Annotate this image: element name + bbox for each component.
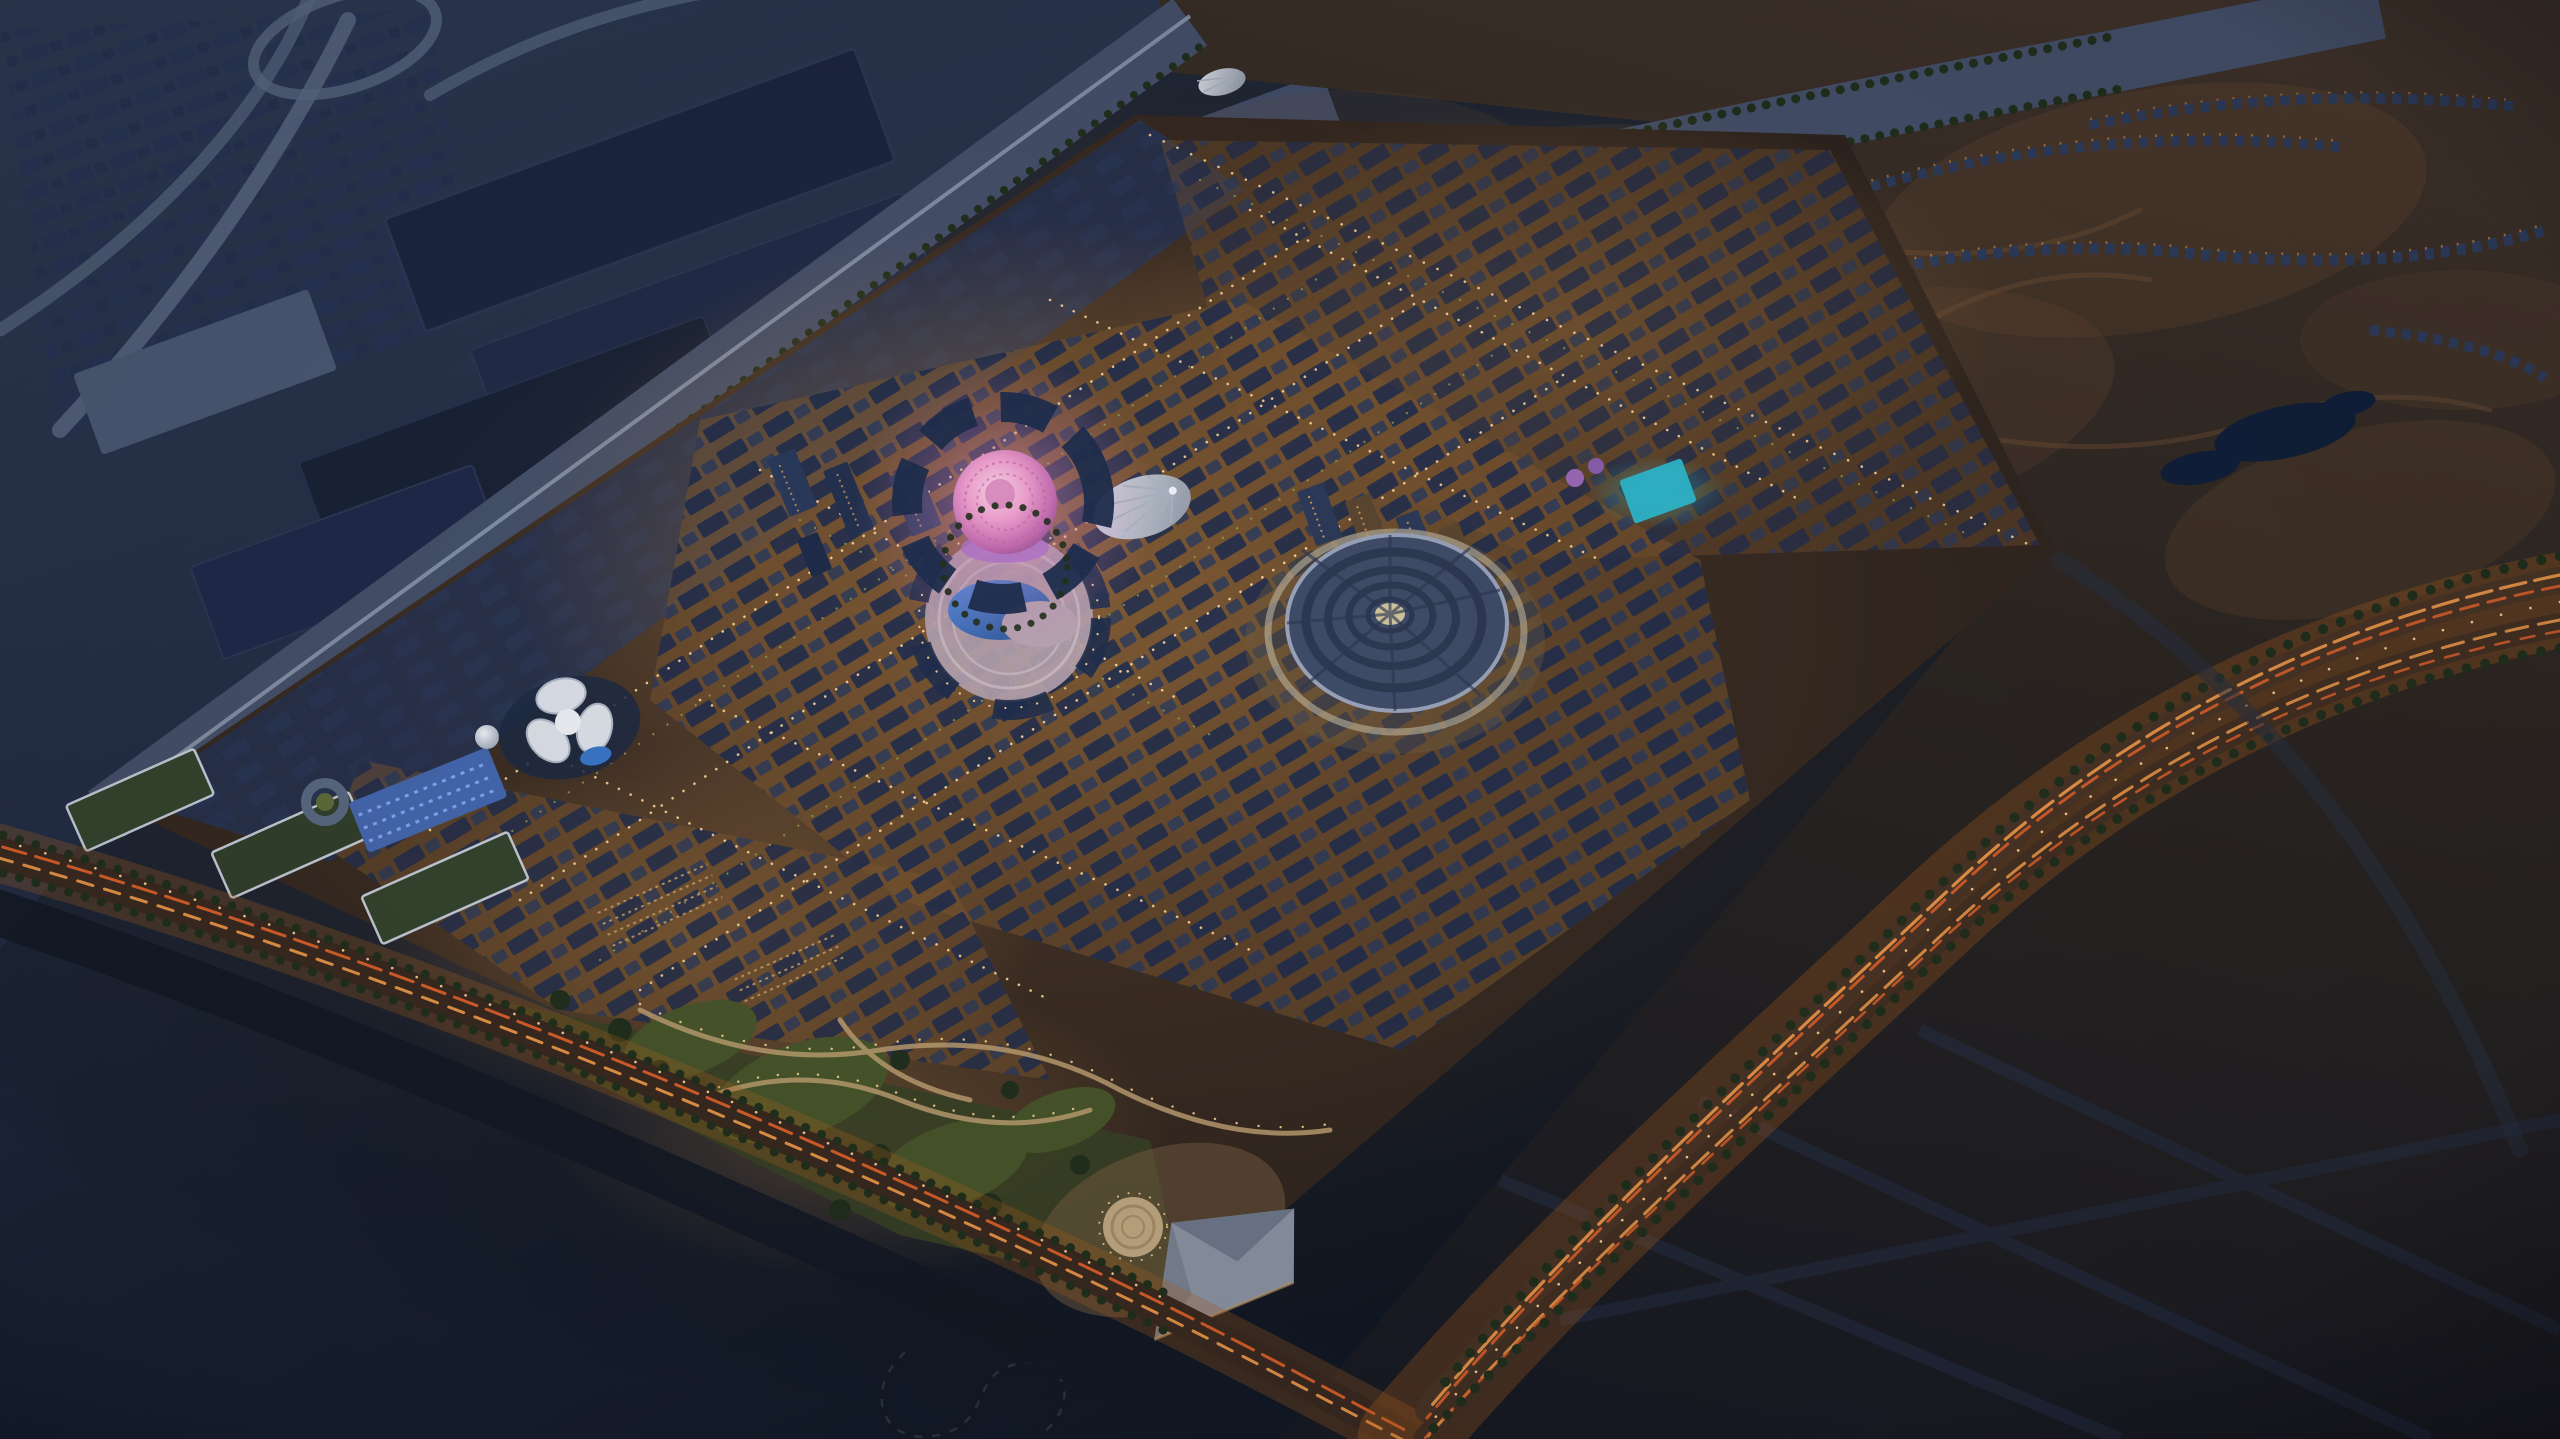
vignette (0, 0, 2560, 1439)
aerial-scene-svg (0, 0, 2560, 1439)
aerial-render (0, 0, 2560, 1439)
